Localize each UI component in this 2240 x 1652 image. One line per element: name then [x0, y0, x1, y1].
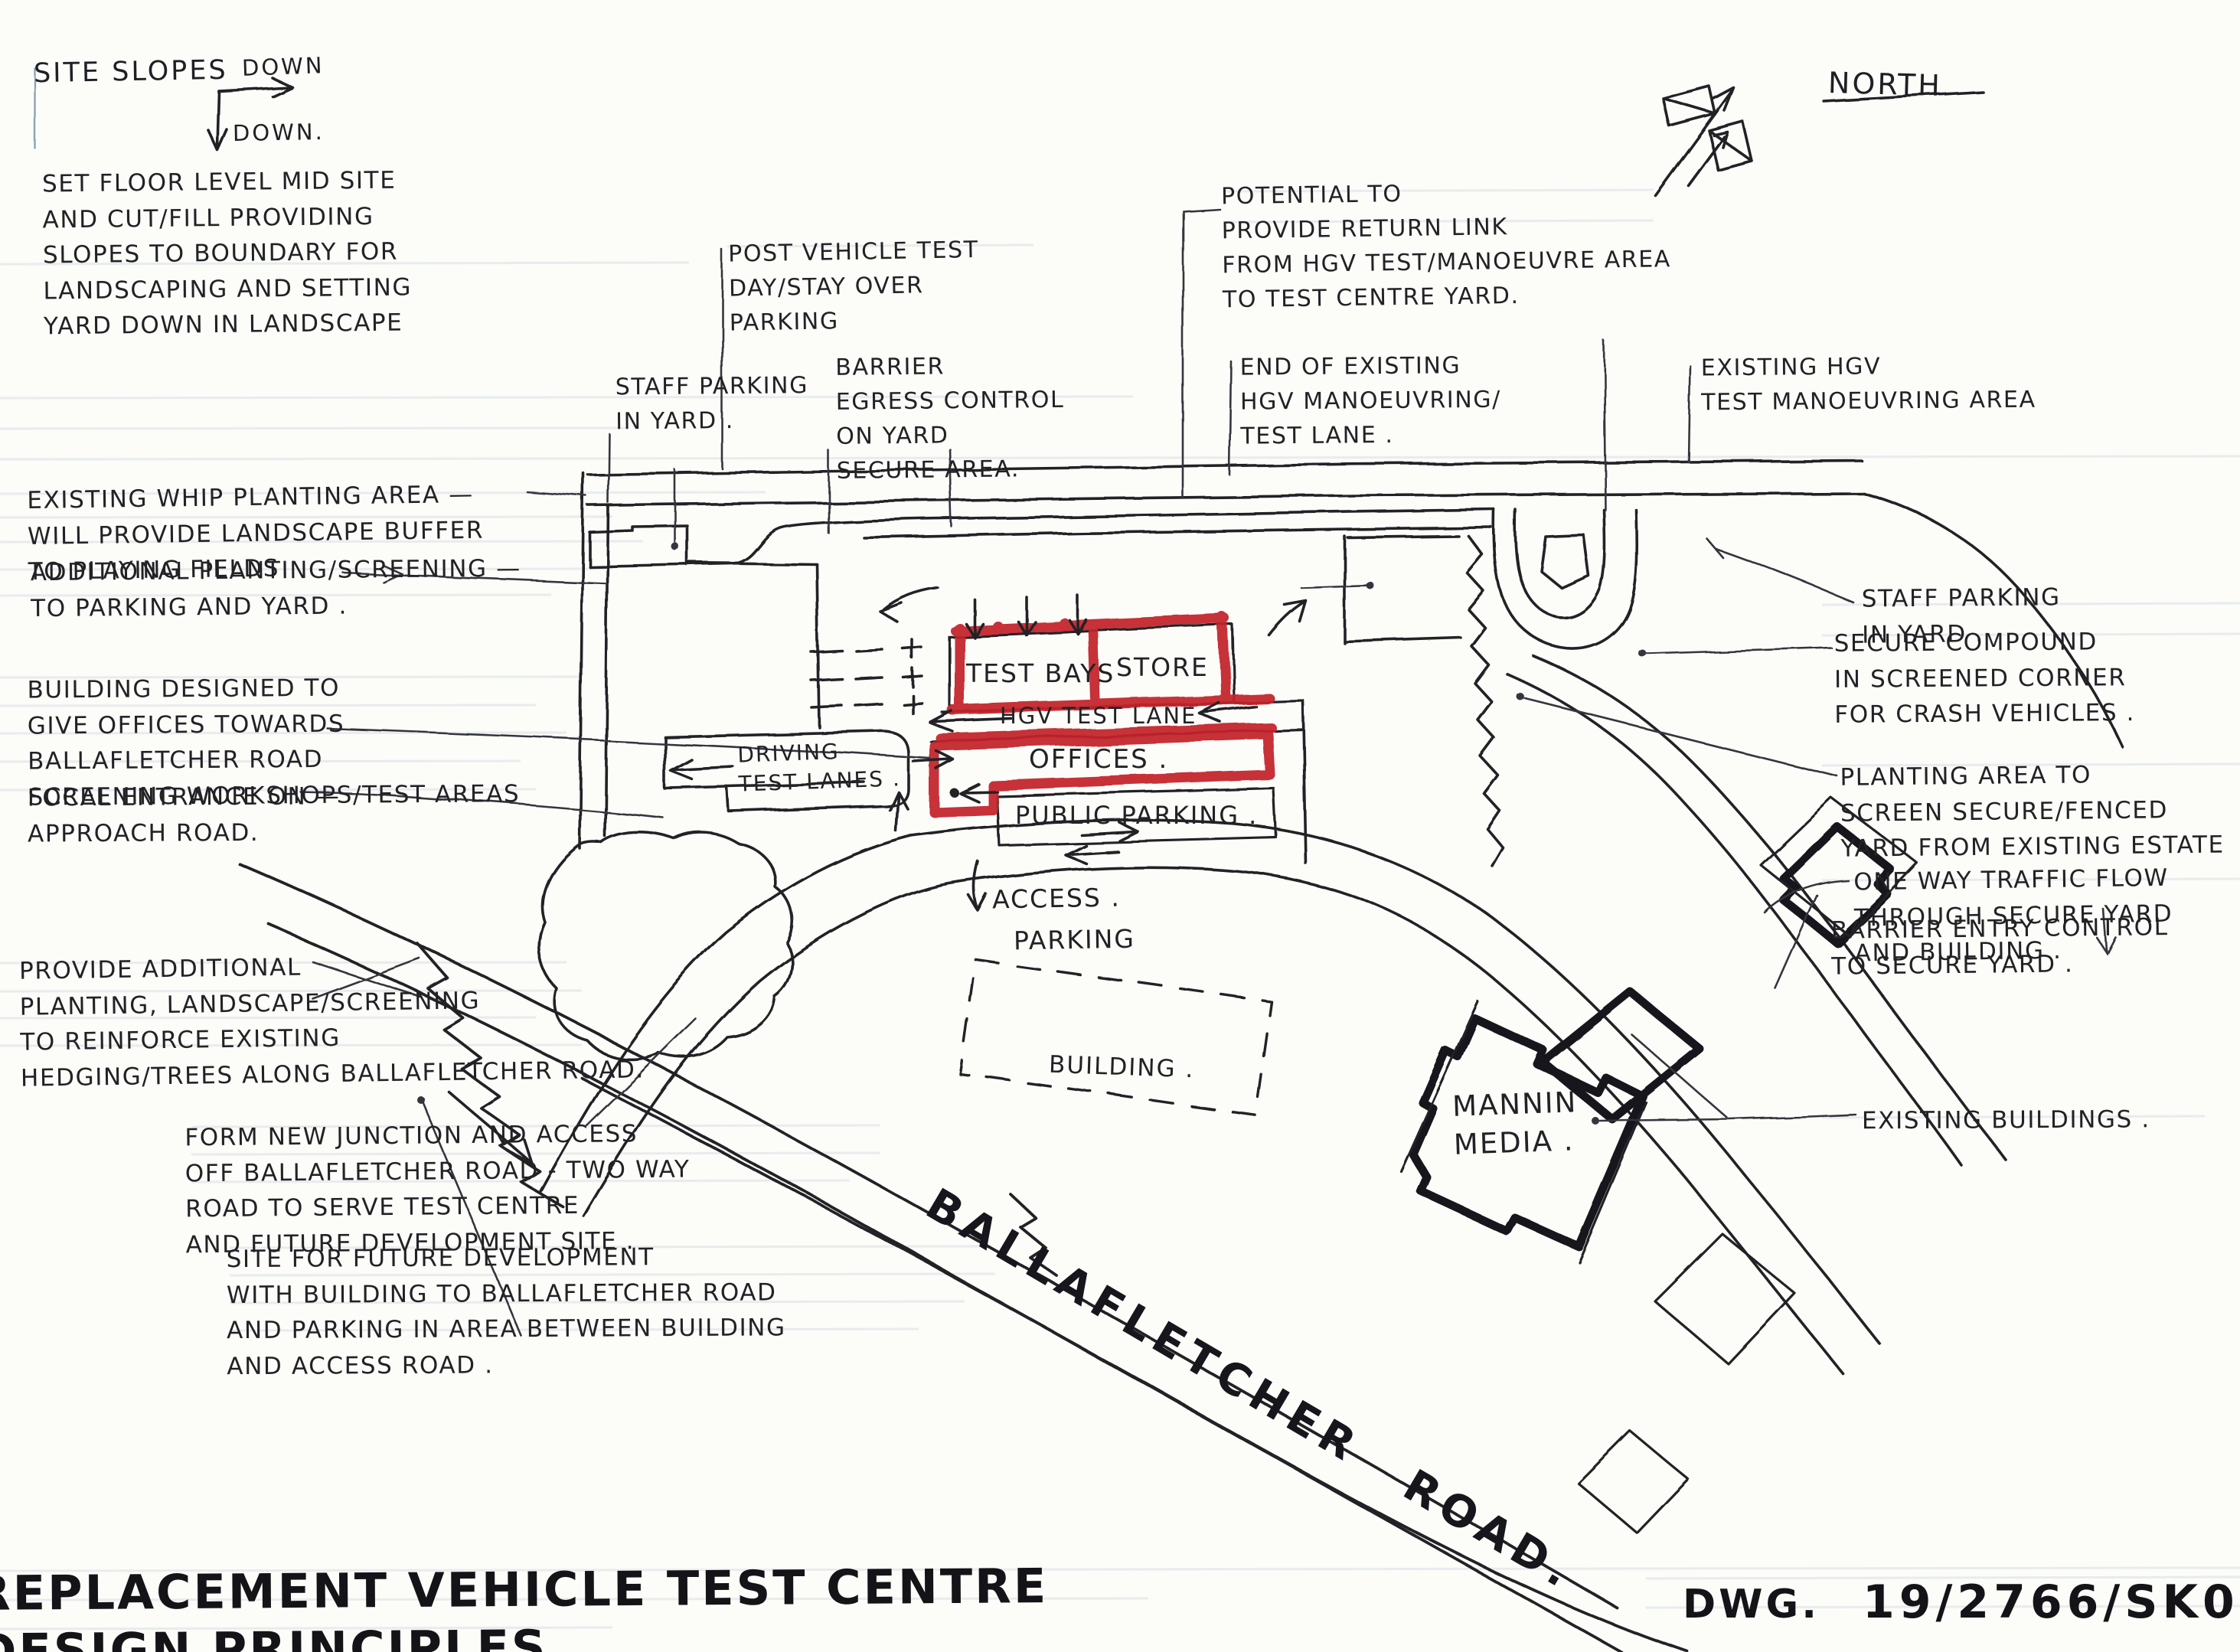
label-offices: OFFICES .	[1029, 743, 1168, 778]
annotation-existing-hgv-manoeuvring-area: EXISTING HGV TEST MANOEUVRING AREA	[1701, 348, 2131, 420]
label-mannin-media: MANNIN MEDIA .	[1451, 1083, 1579, 1164]
annotation-focal-entrance: FOCAL ENTRANCE ON — APPROACH ROAD.	[28, 779, 456, 852]
slope-down-right-label: DOWN	[241, 52, 325, 81]
red-dot	[992, 621, 1003, 632]
annotation-post-vehicle-test-parking: POST VEHICLE TEST DAY/STAY OVER PARKING	[728, 231, 1051, 340]
label-test-bays: TEST BAYS	[966, 657, 1115, 691]
annotation-staff-parking-in-yard-left: STAFF PARKING IN YARD .	[616, 368, 861, 439]
dwg-label: DWG.	[1683, 1582, 1820, 1628]
label-public-parking: PUBLIC PARKING .	[1015, 799, 1258, 832]
label-access: ACCESS .	[992, 881, 1122, 917]
drawing-title-line2: DESIGN PRINCIPLES	[0, 1619, 548, 1652]
annotation-set-floor-level: SET FLOOR LEVEL MID SITE AND CUT/FILL PR…	[42, 162, 549, 344]
dwg-number: 19/2766/SK01	[1863, 1575, 2240, 1629]
drawing-number-block: DWG. 19/2766/SK01	[1683, 1575, 2240, 1629]
label-store: STORE	[1116, 651, 1209, 685]
annotation-provide-additional-planting: PROVIDE ADDITIONAL PLANTING, LANDSCAPE/S…	[19, 945, 649, 1095]
annotation-potential-return-link: POTENTIAL TO PROVIDE RETURN LINK FROM HG…	[1221, 173, 1697, 318]
label-driving-test-lanes: DRIVING TEST LANES .	[737, 735, 902, 798]
north-label: NORTH	[1827, 66, 1942, 103]
label-building: BUILDING .	[1048, 1050, 1195, 1086]
label-parking: PARKING	[1014, 922, 1136, 958]
annotation-site-for-future-development: SITE FOR FUTURE DEVELOPMENT WITH BUILDIN…	[227, 1239, 855, 1384]
annotation-secure-compound: SECURE COMPOUND IN SCREENED CORNER FOR C…	[1834, 623, 2233, 733]
site-slopes-heading: SITE SLOPES	[34, 55, 228, 89]
label-hgv-test-lane: HGV TEST LANE	[1000, 701, 1197, 731]
store-right-wall	[1223, 617, 1226, 698]
annotation-end-of-existing-test-lane: END OF EXISTING HGV MANOEUVRING/ TEST LA…	[1239, 348, 1531, 453]
site-plan-sketch-page: SITE SLOPES DOWN DOWN. NORTH SET FLOOR L…	[0, 0, 2240, 1652]
annotation-existing-buildings: EXISTING BUILDINGS .	[1862, 1102, 2240, 1139]
drawing-title-line1: REPLACEMENT VEHICLE TEST CENTRE	[0, 1558, 1048, 1621]
annotation-additional-planting: ADDITIONAL PLANTING/SCREENING — TO PARKI…	[31, 550, 583, 626]
annotation-barrier-egress-control: BARRIER EGRESS CONTROL ON YARD SECURE AR…	[835, 348, 1112, 488]
red-dot	[1059, 618, 1069, 628]
slope-down-down-label: DOWN.	[233, 119, 325, 146]
annotation-planting-area-screen: PLANTING AREA TO SCREEN SECURE/FENCED YA…	[1840, 756, 2240, 867]
annotation-barrier-entry-control: BARRIER ENTRY CONTROL TO SECURE YARD .	[1831, 909, 2230, 984]
